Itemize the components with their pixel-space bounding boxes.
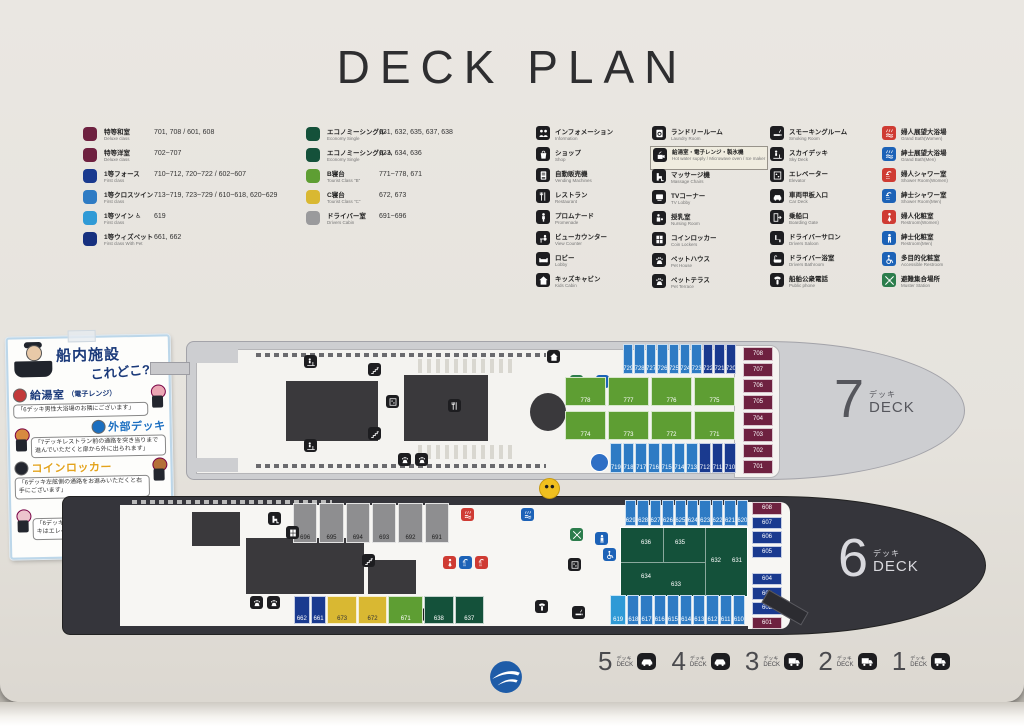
wheelchair-icon xyxy=(882,252,896,266)
cabin-695: 695 xyxy=(319,503,343,543)
facility-name-en: View Counter xyxy=(555,241,607,246)
cabin-635: 635 xyxy=(675,540,685,546)
cabin-672: 672 xyxy=(358,596,387,624)
wall-strip xyxy=(0,702,1024,726)
nursing-icon xyxy=(652,211,666,225)
cabin-632: 632 xyxy=(711,558,721,564)
cabin-607: 607 xyxy=(752,517,782,530)
deck-number: 1 xyxy=(892,648,906,674)
cabin-625: 625 xyxy=(675,500,686,526)
deck-number: 3 xyxy=(745,648,759,674)
facility-row: レストランRestaurant xyxy=(536,189,613,210)
cabin-611: 611 xyxy=(720,595,732,625)
cabin-707: 707 xyxy=(743,363,773,377)
class-color-swatch xyxy=(306,169,320,183)
facility-name-en: Elevator xyxy=(789,178,828,183)
facility-name-jp: プロムナード xyxy=(555,210,594,220)
truck-icon xyxy=(931,653,950,670)
rabbit-character xyxy=(15,509,30,533)
facility-name-en: Sky Deck xyxy=(789,157,828,162)
room-class-row: 1等ツイン ♿First class619 xyxy=(83,210,277,231)
smoking-icon xyxy=(770,126,784,140)
deck7-tourist-b-top: 778777776775 xyxy=(565,377,735,406)
class-room-numbers: 661, 662 xyxy=(154,233,181,241)
facility-name-jp: 授乳室 xyxy=(671,211,700,221)
class-name-jp: 1等ウィズペット xyxy=(104,231,150,241)
room-class-row: 1等クロスツインFirst class713~719, 723~729 / 61… xyxy=(83,189,277,210)
stairs-icon xyxy=(362,554,375,567)
skydeck-icon xyxy=(770,147,784,161)
bag-icon xyxy=(536,147,550,161)
cabin-628: 628 xyxy=(637,500,648,526)
cabin-614: 614 xyxy=(680,595,692,625)
pet-terrace-icon xyxy=(415,453,428,466)
class-room-numbers: 713~719, 723~729 / 610~618, 620~629 xyxy=(154,191,277,199)
facility-name-jp: スモーキングルーム xyxy=(789,126,847,136)
facility-name-en: Coin Lockers xyxy=(671,242,717,247)
locker-icon xyxy=(652,232,666,246)
kids-icon xyxy=(536,273,550,287)
page-title: DECK PLAN xyxy=(0,40,1024,94)
room-class-row: エコノミーシングル ♿Economy Single633, 634, 636 xyxy=(306,147,453,168)
facility-name-jp: 婦人展望大浴場 xyxy=(901,126,947,136)
facility-row: 自動販売機Vending Machines xyxy=(536,168,613,189)
facility-name-en: Muster Station xyxy=(901,283,940,288)
ferry-company-logo xyxy=(489,660,523,694)
facility-row: プロムナードPromenade xyxy=(536,210,613,231)
deck1-indicator: 1デッキDECK xyxy=(892,648,950,674)
class-color-swatch xyxy=(306,211,320,225)
cabin-626: 626 xyxy=(662,500,673,526)
facility-name-jp: 紳士シャワー室 xyxy=(901,189,947,199)
facility-row: ドライバーサロンDrivers Saloon xyxy=(770,231,847,252)
cabin-691: 691 xyxy=(425,503,449,543)
speech-bubble: 「6デッキ男性大浴場のお隣にございます」 xyxy=(13,402,148,419)
facility-name-jp: ペットハウス xyxy=(671,253,710,263)
facility-row: キッズキャビンKids Cabin xyxy=(536,273,613,294)
class-name-jp: エコノミーシングル xyxy=(327,126,375,136)
facility-name-jp: マッサージ機 xyxy=(671,169,710,179)
facility-name-en: Restroom(Men) xyxy=(901,241,934,246)
facility-name-jp: エレベーター xyxy=(789,168,828,178)
people-icon xyxy=(536,126,550,140)
cabin-619: 619 xyxy=(610,595,626,625)
kids-cabin-icon xyxy=(547,350,560,363)
facility-name-en: Lobby xyxy=(555,262,575,267)
class-room-numbers: 672, 673 xyxy=(379,191,406,199)
room-class-row: エコノミーシングルEconomy Single631, 632, 635, 63… xyxy=(306,126,453,147)
pet-terrace-icon xyxy=(267,596,280,609)
cabin-605: 605 xyxy=(752,546,782,559)
cabin-692: 692 xyxy=(398,503,422,543)
class-name-en: First class With Pet xyxy=(104,241,150,246)
deck6-bottom-cabins: 619618617616615614613612611610 xyxy=(610,595,745,625)
deck7-top-cabins: 729728727726725724723722721720 xyxy=(623,344,736,374)
cabin-662: 662 xyxy=(294,596,310,624)
class-name-jp: エコノミーシングル ♿ xyxy=(327,147,375,157)
facility-name-jp: ロビー xyxy=(555,252,575,262)
cabin-608: 608 xyxy=(752,502,782,515)
cabin-704: 704 xyxy=(743,412,773,426)
facility-name-jp: コインロッカー xyxy=(671,232,717,242)
pig-character xyxy=(150,384,165,408)
laundry-icon xyxy=(652,126,666,140)
cabin-629: 629 xyxy=(625,500,636,526)
cabin-773: 773 xyxy=(608,411,649,440)
class-name-en: Economy Single xyxy=(327,136,375,141)
class-color-swatch xyxy=(306,190,320,204)
cabin-623: 623 xyxy=(699,500,710,526)
facility-name-en: Laundry Room xyxy=(671,136,723,141)
cabin-606: 606 xyxy=(752,531,782,544)
cabin-727: 727 xyxy=(646,344,656,374)
class-color-swatch xyxy=(306,127,320,141)
shower-icon xyxy=(882,168,896,182)
deck5-indicator: 5デッキDECK xyxy=(598,648,656,674)
facility-row: スモーキングルームSmoking Room xyxy=(770,126,847,147)
cabin-725: 725 xyxy=(669,344,679,374)
cabin-701: 701 xyxy=(743,460,773,474)
public-phone-icon xyxy=(535,600,548,613)
badge-icon xyxy=(91,419,105,433)
facility-name-en: Grand Bath(Men) xyxy=(901,157,947,162)
facility-row: 授乳室Nursing Room xyxy=(652,211,766,232)
muster-icon xyxy=(882,273,896,287)
cabin-713: 713 xyxy=(686,443,698,473)
class-color-swatch xyxy=(83,169,97,183)
facility-row: ショップShop xyxy=(536,147,613,168)
facility-row: 船舶公衆電話Public phone xyxy=(770,273,847,294)
tv-icon xyxy=(652,190,666,204)
badge-label: 給湯室 xyxy=(30,387,65,404)
cabin-624: 624 xyxy=(687,500,698,526)
smiley-sticker-dot xyxy=(539,478,560,499)
truck-icon xyxy=(784,653,803,670)
counter-icon xyxy=(536,231,550,245)
deck7-bottom-cabins: 719718717716715714713712711710 xyxy=(610,443,736,473)
facility-name-jp: 紳士展望大浴場 xyxy=(901,147,947,157)
cabin-772: 772 xyxy=(651,411,692,440)
facility-legend-col2: ランドリールームLaundry Room給湯室・電子レンジ・製氷機Hot wat… xyxy=(652,126,766,295)
class-name-en: First class xyxy=(104,178,150,183)
facility-row: 婦人化粧室Restroom(Women) xyxy=(882,210,948,231)
badge-suffix: （電子レンジ） xyxy=(67,388,116,399)
class-room-numbers: 702~707 xyxy=(154,149,181,157)
facility-name-en: Kids Cabin xyxy=(555,283,601,288)
stairs-icon xyxy=(368,427,381,440)
facility-name-jp: TVコーナー xyxy=(671,190,705,200)
facility-name-jp: 給湯室・電子レンジ・製氷機 xyxy=(672,148,765,156)
deck7-galley xyxy=(404,375,488,441)
deck6-stern-cabins: 662661673672671638637 xyxy=(294,596,484,624)
facility-name-jp: 自動販売機 xyxy=(555,168,592,178)
cabin-621: 621 xyxy=(724,500,735,526)
class-name-en: Deluxe class xyxy=(104,157,150,162)
class-name-en: Tourist Class "B" xyxy=(327,178,375,183)
facility-name-en: Shower Room(Women) xyxy=(901,178,948,183)
cabin-712: 712 xyxy=(699,443,711,473)
cabin-702: 702 xyxy=(743,444,773,458)
cabin-705: 705 xyxy=(743,395,773,409)
cabin-718: 718 xyxy=(623,443,635,473)
badge-icon xyxy=(13,388,27,402)
cabin-694: 694 xyxy=(346,503,370,543)
elevator-icon xyxy=(770,168,784,182)
room-class-legend-col1: 特等和室Deluxe class701, 708 / 601, 608特等洋室D… xyxy=(83,126,277,252)
cabin-622: 622 xyxy=(712,500,723,526)
class-name-jp: 1等クロスツイン xyxy=(104,189,150,199)
cabin-661: 661 xyxy=(311,596,327,624)
vending-icon xyxy=(536,168,550,182)
cabin-716: 716 xyxy=(648,443,660,473)
cabin-631: 631 xyxy=(732,558,742,564)
sticker-item-給湯室: 給湯室（電子レンジ）「6デッキ男性大浴場のお隣にございます」 xyxy=(13,384,166,418)
cabin-723: 723 xyxy=(691,344,701,374)
pet-house-icon xyxy=(250,596,263,609)
saloon-icon xyxy=(770,231,784,245)
speech-bubble: 「7デッキレストラン前の通路を突き当りまで進んでいただくと扉から外に出られます」 xyxy=(31,434,166,458)
car-icon xyxy=(711,653,730,670)
spacer xyxy=(752,560,782,571)
grand-bath-women-icon xyxy=(461,508,474,521)
cabin-720: 720 xyxy=(726,344,736,374)
class-room-numbers: 633, 634, 636 xyxy=(379,149,422,157)
cabin-604: 604 xyxy=(752,573,782,586)
facility-row: 多目的化粧室Accessible Restroom xyxy=(882,252,948,273)
facility-name-jp: ショップ xyxy=(555,147,581,157)
facility-legend-col3: スモーキングルームSmoking RoomスカイデッキSky Deckエレベータ… xyxy=(770,126,847,294)
facility-row: 紳士シャワー室Shower Room(Men) xyxy=(882,189,948,210)
truck-icon xyxy=(858,653,877,670)
facility-row: ペットテラスPet Terrace xyxy=(652,274,766,295)
cabin-634: 634 xyxy=(641,574,651,580)
facility-name-en: Shop xyxy=(555,157,581,162)
cabin-617: 617 xyxy=(640,595,652,625)
badge-label: 外部デッキ xyxy=(108,417,166,434)
class-name-jp: B寝台 xyxy=(327,168,375,178)
kitchen-icon xyxy=(653,148,667,162)
facility-name-jp: 船舶公衆電話 xyxy=(789,273,828,283)
cabin-778: 778 xyxy=(565,377,606,406)
cabin-610: 610 xyxy=(733,595,745,625)
facility-name-en: Car Deck xyxy=(789,199,828,204)
cabin-715: 715 xyxy=(661,443,673,473)
cabin-638: 638 xyxy=(424,596,453,624)
class-color-swatch xyxy=(83,190,97,204)
room-class-row: 特等和室Deluxe class701, 708 / 601, 608 xyxy=(83,126,277,147)
massage-icon xyxy=(652,169,666,183)
class-name-jp: 1等フォース xyxy=(104,168,150,178)
phone-icon xyxy=(770,273,784,287)
class-name-jp: 特等和室 xyxy=(104,126,150,136)
facility-row: 紳士展望大浴場Grand Bath(Men) xyxy=(882,147,948,168)
facility-row: 婦人シャワー室Shower Room(Women) xyxy=(882,168,948,189)
deck2-indicator: 2デッキDECK xyxy=(818,648,876,674)
facility-name-jp: インフォメーション xyxy=(555,126,613,136)
deck7-label: 7 デッキDECK xyxy=(834,377,915,423)
muster-station-icon xyxy=(570,528,583,541)
room-class-row: ドライバー室Drivers Cabin691~696 xyxy=(306,210,453,231)
accessible-restroom-icon xyxy=(603,548,616,561)
grand-bath-men-icon xyxy=(521,508,534,521)
cabin-724: 724 xyxy=(680,344,690,374)
cabin-693: 693 xyxy=(372,503,396,543)
facility-name-jp: ドライバーサロン xyxy=(789,231,841,241)
facility-name-en: Hot water supply / Microwave oven / Ice … xyxy=(672,156,765,161)
cabin-711: 711 xyxy=(712,443,724,473)
cabin-612: 612 xyxy=(706,595,718,625)
sticker-item-外部デッキ: 外部デッキ「7デッキレストラン前の通路を突き当りまで進んでいただくと扉から外に出… xyxy=(13,417,166,459)
facility-name-jp: ランドリールーム xyxy=(671,126,723,136)
cabin-615: 615 xyxy=(667,595,679,625)
cabin-774: 774 xyxy=(565,411,606,440)
cabin-714: 714 xyxy=(674,443,686,473)
cabin-775: 775 xyxy=(694,377,735,406)
massage-chairs-icon xyxy=(268,512,281,525)
facility-name-jp: 紳士化粧室 xyxy=(901,231,934,241)
elevator-icon xyxy=(386,395,399,408)
cabin-627: 627 xyxy=(650,500,661,526)
facility-legend-col1: インフォメーションInformationショップShop自動販売機Vending… xyxy=(536,126,613,294)
facility-row: ペットハウスPet House xyxy=(652,253,766,274)
room-class-legend-col2: エコノミーシングルEconomy Single631, 632, 635, 63… xyxy=(306,126,453,231)
cabin-776: 776 xyxy=(651,377,692,406)
restaurant-icon xyxy=(536,189,550,203)
deck4-indicator: 4デッキDECK xyxy=(671,648,729,674)
deck6-label: 6 デッキDECK xyxy=(838,536,919,582)
facility-row: 給湯室・電子レンジ・製氷機Hot water supply / Microwav… xyxy=(650,146,768,170)
sky-deck-icon xyxy=(304,439,317,452)
facility-row: TVコーナーTV Lobby xyxy=(652,190,766,211)
woman-icon xyxy=(882,210,896,224)
class-name-en: Tourist Class "C" xyxy=(327,199,375,204)
facility-name-en: Promenade xyxy=(555,220,594,225)
facility-row: エレベーターElevator xyxy=(770,168,847,189)
facility-name-jp: 多目的化粧室 xyxy=(901,252,943,262)
cabin-633: 633 xyxy=(671,582,681,588)
facility-name-jp: ビューカウンター xyxy=(555,231,607,241)
shower-icon xyxy=(882,189,896,203)
facility-name-jp: 車両甲板入口 xyxy=(789,189,828,199)
deck6-casing xyxy=(246,538,364,594)
cabin-777: 777 xyxy=(608,377,649,406)
cabin-726: 726 xyxy=(657,344,667,374)
cabin-618: 618 xyxy=(627,595,639,625)
cabin-708: 708 xyxy=(743,347,773,361)
bath-icon xyxy=(882,147,896,161)
room-class-row: B寝台Tourist Class "B"771~778, 671 xyxy=(306,168,453,189)
facility-name-en: Shower Room(Men) xyxy=(901,199,947,204)
class-color-swatch xyxy=(83,148,97,162)
facility-row: スカイデッキSky Deck xyxy=(770,147,847,168)
class-room-numbers: 710~712, 720~722 / 602~607 xyxy=(154,170,246,178)
restroom-women-icon xyxy=(443,556,456,569)
cabin-671: 671 xyxy=(388,596,423,624)
class-name-en: Drivers Cabin xyxy=(327,220,375,225)
facility-name-jp: 避難集合場所 xyxy=(901,273,940,283)
facility-name-jp: キッズキャビン xyxy=(555,273,601,283)
facility-row: マッサージ機Massage Chairs xyxy=(652,169,766,190)
facility-legend-col4: 婦人展望大浴場Grand Bath(Women)紳士展望大浴場Grand Bat… xyxy=(882,126,948,294)
shower-room-icon xyxy=(475,556,488,569)
class-color-swatch xyxy=(306,148,320,162)
facility-name-jp: レストラン xyxy=(555,189,588,199)
cabin-601: 601 xyxy=(752,617,782,630)
lobby-icon xyxy=(536,252,550,266)
facility-row: ランドリールームLaundry Room xyxy=(652,126,766,147)
facility-name-en: Accessible Restroom xyxy=(901,262,943,267)
facility-row: ドライバー浴室Drivers Bathroom xyxy=(770,252,847,273)
facility-name-jp: ドライバー浴室 xyxy=(789,252,834,262)
facility-name-jp: ペットテラス xyxy=(671,274,710,284)
room-class-row: 1等ウィズペットFirst class With Pet661, 662 xyxy=(83,231,277,252)
facility-name-en: Drivers Bathroom xyxy=(789,262,834,267)
cabin-771: 771 xyxy=(694,411,735,440)
facility-name-en: Public phone xyxy=(789,283,828,288)
facility-name-en: Boarding Gate xyxy=(789,220,818,225)
deck-number: 2 xyxy=(818,648,832,674)
cabin-636: 636 xyxy=(641,540,651,546)
room-class-row: 特等洋室Deluxe class702~707 xyxy=(83,147,277,168)
pet-house-icon xyxy=(398,453,411,466)
coin-locker-icon xyxy=(286,526,299,539)
bath-icon xyxy=(882,126,896,140)
facility-row: 乗船口Boarding Gate xyxy=(770,210,847,231)
facility-name-en: Vending Machines xyxy=(555,178,592,183)
facility-name-en: Pet Terrace xyxy=(671,284,710,289)
elevator-icon xyxy=(568,558,581,571)
restaurant-icon xyxy=(448,399,461,412)
facility-name-jp: 婦人化粧室 xyxy=(901,210,939,220)
lower-deck-indicators: 5デッキDECK4デッキDECK3デッキDECK2デッキDECK1デッキDECK xyxy=(598,648,950,674)
deck-number: 5 xyxy=(598,648,612,674)
facility-name-en: Nursing Room xyxy=(671,221,700,226)
facility-name-en: Drivers Saloon xyxy=(789,241,841,246)
facility-row: ロビーLobby xyxy=(536,252,613,273)
shower-room-icon xyxy=(459,556,472,569)
class-name-jp: 特等洋室 xyxy=(104,147,150,157)
class-name-jp: 1等ツイン ♿ xyxy=(104,210,150,220)
badge-icon xyxy=(14,462,28,476)
room-class-row: C寝台Tourist Class "C"672, 673 xyxy=(306,189,453,210)
cabin-620: 620 xyxy=(737,500,748,526)
facility-name-jp: 婦人シャワー室 xyxy=(901,168,948,178)
cardeck-icon xyxy=(770,189,784,203)
facility-name-jp: 乗船口 xyxy=(789,210,818,220)
tape xyxy=(68,330,96,343)
deck7-stern-platform xyxy=(150,362,190,375)
class-color-swatch xyxy=(83,127,97,141)
class-room-numbers: 771~778, 671 xyxy=(379,170,422,178)
deck7-bow-cabins: 708707706705704703702701 xyxy=(743,347,773,474)
deck7-plan: 729728727726725724723722721720 778777776… xyxy=(186,341,965,480)
facility-row: 婦人展望大浴場Grand Bath(Women) xyxy=(882,126,948,147)
room-class-row: 1等フォースFirst class710~712, 720~722 / 602~… xyxy=(83,168,277,189)
info-desk xyxy=(530,393,566,431)
class-room-numbers: 691~696 xyxy=(379,212,406,220)
facility-name-en: Restroom(Women) xyxy=(901,220,939,225)
sticker-item-コインロッカー: コインロッカー「6デッキ左舷側の通路をお進みいただくと右手にございます」 xyxy=(14,458,167,500)
cabin-721: 721 xyxy=(714,344,724,374)
sky-deck-icon xyxy=(304,355,317,368)
facility-row: 車両甲板入口Car Deck xyxy=(770,189,847,210)
facility-name-en: TV Lobby xyxy=(671,200,705,205)
class-name-en: Deluxe class xyxy=(104,136,150,141)
class-name-en: First class xyxy=(104,199,150,204)
deck6-economy-single-block: 636 635 632 631 634 633 xyxy=(620,527,748,597)
deck6-room-block xyxy=(192,512,240,546)
bathtub-icon xyxy=(770,252,784,266)
